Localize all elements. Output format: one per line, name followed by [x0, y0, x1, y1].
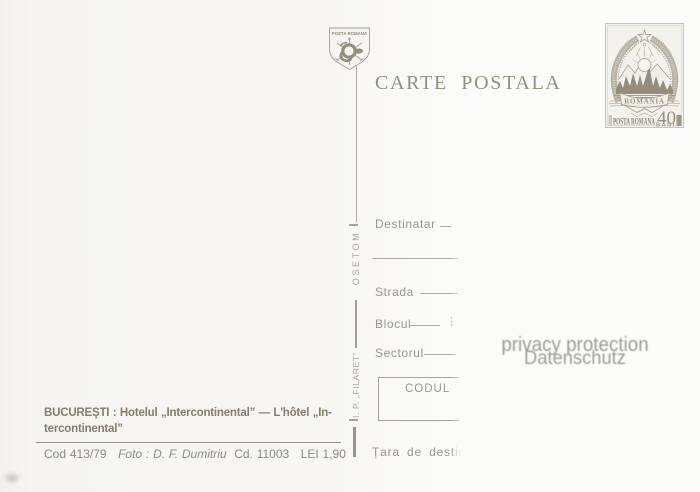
svg-text:POSTA ROMANA: POSTA ROMANA	[332, 31, 367, 36]
svg-text:BANI: BANI	[656, 123, 676, 129]
svg-text:ROMANIA: ROMANIA	[624, 98, 665, 106]
svg-text:POSTA ROMANA: POSTA ROMANA	[613, 118, 655, 128]
